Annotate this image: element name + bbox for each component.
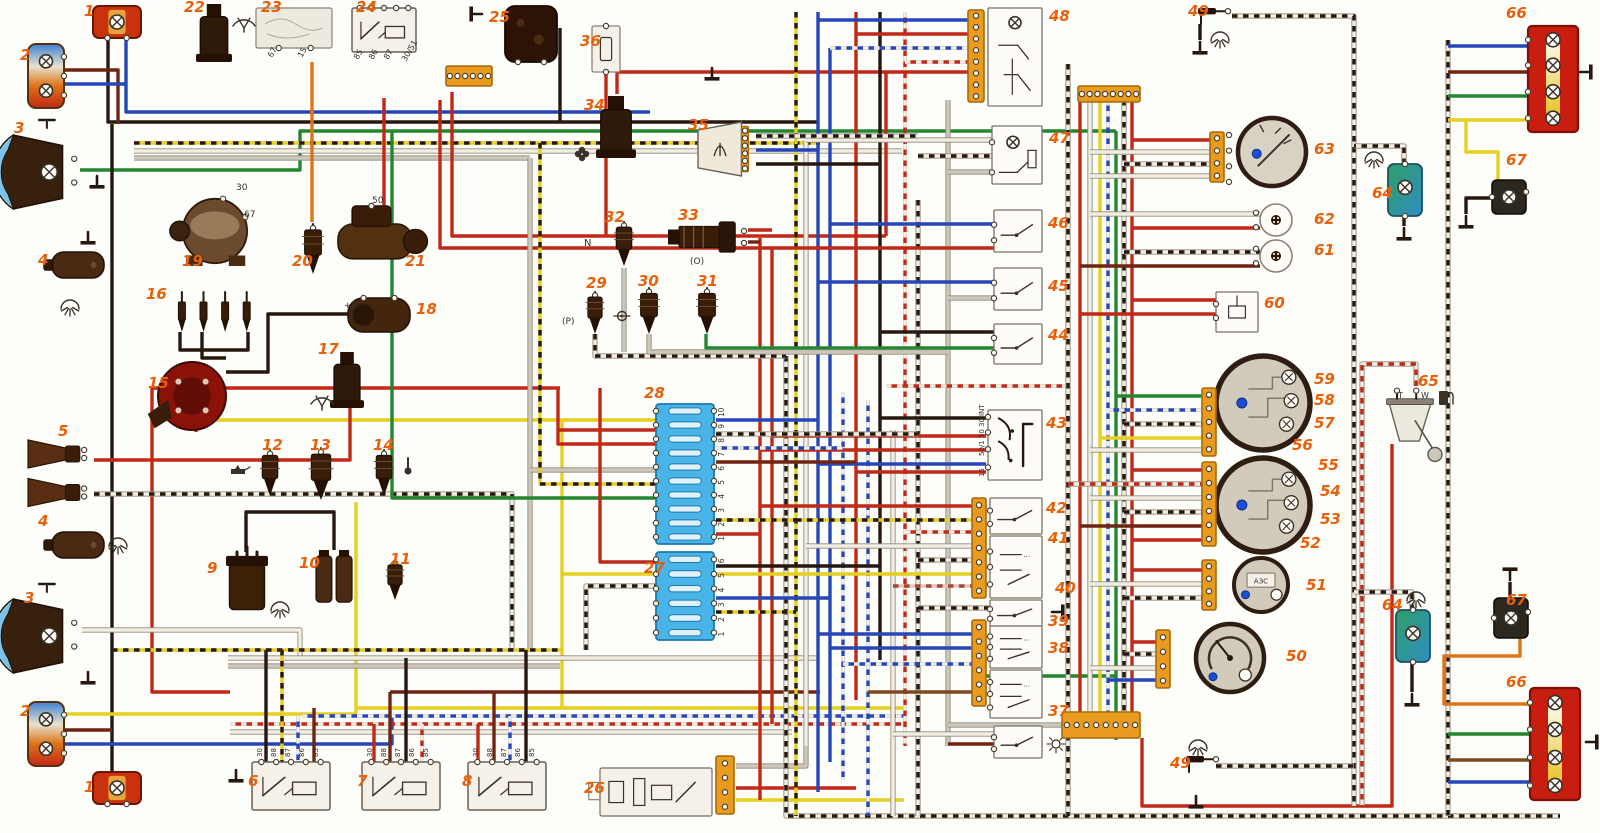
wire xyxy=(1466,198,1492,214)
relay-6 xyxy=(252,759,330,810)
rays-icon xyxy=(1211,32,1229,48)
svg-text:1: 1 xyxy=(717,536,726,541)
component-number-label: 3 xyxy=(14,119,24,137)
oil-pressure-sensor xyxy=(260,450,279,496)
component-number-label: 57 xyxy=(1314,414,1335,432)
terminal-label: 86 xyxy=(408,748,416,757)
turn-signal-breaker xyxy=(589,768,712,816)
component-number-label: 18 xyxy=(416,300,437,318)
switch-42 xyxy=(987,498,1042,534)
bulbr-icon xyxy=(1047,738,1065,753)
terminal-label: INT xyxy=(978,404,986,416)
ground-symbol xyxy=(705,68,720,81)
wire xyxy=(1444,638,1530,704)
switch-38: ... xyxy=(987,670,1042,718)
component-number-label: 24 xyxy=(356,0,377,16)
svg-text:9: 9 xyxy=(717,424,726,429)
svg-text:АЗС: АЗС xyxy=(1254,577,1268,585)
component-number-label: 19 xyxy=(182,252,203,270)
svg-text:10: 10 xyxy=(717,407,726,417)
svg-text:2: 2 xyxy=(717,617,726,622)
component-number-label: 21 xyxy=(405,252,426,270)
pump-icon xyxy=(1439,391,1453,405)
component-number-label: 37 xyxy=(1048,702,1069,720)
clock-gauge: АЗС xyxy=(1234,558,1288,612)
svg-text:...: ... xyxy=(1023,551,1030,559)
component-number-label: 4 xyxy=(37,251,48,269)
turn-repeater-front xyxy=(93,6,141,41)
component-number-label: 47 xyxy=(1048,129,1070,147)
wire xyxy=(586,586,656,650)
component-number-label: 27 xyxy=(644,559,665,577)
headlight-wiper-motor-2 xyxy=(44,532,104,558)
relay-8 xyxy=(468,759,546,810)
component-number-label: 63 xyxy=(1314,140,1335,158)
component-number-label: 54 xyxy=(1320,482,1341,500)
fuel-gauge xyxy=(1226,118,1306,186)
wire-stripe xyxy=(586,586,656,650)
wiring-diagram-canvas: 10987654321654321.........АЗС12345432167… xyxy=(0,0,1600,833)
component-number-label: 25 xyxy=(489,8,510,26)
terminal-label: 30 xyxy=(366,748,374,757)
component-number-label: 64 xyxy=(1372,184,1393,202)
sensor-30 xyxy=(639,288,660,334)
terminal-label: 15 xyxy=(978,468,986,477)
svg-text:4: 4 xyxy=(717,494,726,499)
terminal-label: +Б xyxy=(344,301,358,311)
component-number-label: 65 xyxy=(1418,372,1439,390)
component-number-label: 42 xyxy=(1045,499,1067,517)
front-combo-lamp-2 xyxy=(28,702,67,766)
component-number-label: 15 xyxy=(148,374,169,392)
wire xyxy=(64,502,356,714)
terminal-label: 87 xyxy=(500,748,508,757)
connector-strip xyxy=(446,66,492,86)
wire-outline xyxy=(94,494,512,650)
connector-strip xyxy=(1156,630,1170,688)
fuse-box-main: 10987654321 xyxy=(653,404,726,544)
component-number-label: 50 xyxy=(1286,647,1307,665)
ground-symbol xyxy=(1459,216,1474,229)
wire xyxy=(64,70,118,124)
terminal-label: 88 xyxy=(270,748,278,757)
component-number-label: 51 xyxy=(1306,576,1327,594)
terminal-label: 88 xyxy=(486,748,494,757)
connector-strip xyxy=(1202,462,1216,546)
temp-icon xyxy=(405,458,412,475)
component-number-label: 66 xyxy=(1506,673,1527,691)
component-number-label: 49 xyxy=(1187,2,1209,20)
terminal-label: 67 xyxy=(244,210,255,220)
component-number-label: 44 xyxy=(1047,326,1069,344)
component-number-label: 33 xyxy=(678,206,699,224)
terminal-label: 85 xyxy=(422,748,430,757)
component-number-label: 67 xyxy=(1506,591,1527,609)
terminal-label: 30 xyxy=(256,748,264,757)
rays-icon xyxy=(1365,152,1383,168)
component-number-label: 11 xyxy=(390,550,411,568)
component-number-label: 62 xyxy=(1314,210,1335,228)
component-number-label: 32 xyxy=(604,208,625,226)
component-number-label: 20 xyxy=(292,252,313,270)
tail-lamp-cluster xyxy=(1525,26,1578,132)
wire xyxy=(152,388,230,692)
svg-text:3: 3 xyxy=(717,508,726,513)
glovebox-lamp-switch xyxy=(991,726,1042,758)
switch-45 xyxy=(991,268,1042,310)
component-number-label: 16 xyxy=(146,285,167,303)
switch-39: ... xyxy=(987,626,1042,668)
terminal-label: 88 xyxy=(380,748,388,757)
component-number-label: 58 xyxy=(1314,391,1335,409)
ground-symbol xyxy=(1189,796,1204,809)
component-number-label: 6 xyxy=(248,772,258,790)
component-number-label: 64 xyxy=(1382,596,1403,614)
component-number-label: 36 xyxy=(580,32,601,50)
component-number-label: 41 xyxy=(1047,529,1069,547)
svg-text:...: ... xyxy=(1023,634,1030,642)
component-number-label: 61 xyxy=(1314,241,1335,259)
component-number-label: 55 xyxy=(1318,456,1339,474)
ground-symbol xyxy=(81,232,96,245)
component-number-label: 2 xyxy=(20,702,30,720)
component-number-label: 53 xyxy=(1320,510,1341,528)
rays-icon xyxy=(61,300,79,316)
component-number-label: 40 xyxy=(1054,579,1076,597)
component-number-label: 2 xyxy=(20,46,30,64)
connector-strip xyxy=(972,620,986,706)
wire xyxy=(617,72,886,94)
component-number-label: 38 xyxy=(1048,639,1069,657)
combination-gauge xyxy=(1216,458,1310,552)
component-number-label: 66 xyxy=(1506,4,1527,22)
terminal-label: 85 xyxy=(528,748,536,757)
component-number-label: 43 xyxy=(1045,414,1067,432)
component-number-label: 46 xyxy=(1047,214,1069,232)
ground-symbol xyxy=(1580,65,1593,80)
wire-stripe xyxy=(94,494,512,650)
turn-repeater-front-2 xyxy=(93,772,141,807)
hazard-switch xyxy=(988,8,1042,106)
component-number-label: 26 xyxy=(584,779,605,797)
component-number-label: 34 xyxy=(584,96,605,114)
component-number-label: 9 xyxy=(207,559,217,577)
ground-symbol xyxy=(1586,735,1599,750)
connector-strip xyxy=(968,10,984,102)
component-number-label: 10 xyxy=(299,554,320,572)
component-number-label: 28 xyxy=(644,384,665,402)
wire xyxy=(180,332,248,350)
front-combo-lamp xyxy=(28,44,67,108)
rays-icon xyxy=(1189,740,1207,756)
wiring-layer xyxy=(64,12,1560,816)
headlight-2 xyxy=(0,584,77,673)
washer-pump-2 xyxy=(330,352,364,408)
component-number-label: 30 xyxy=(638,272,659,290)
component-number-label: 1 xyxy=(84,778,94,796)
connector-strip xyxy=(716,756,734,814)
component-number-label: 23 xyxy=(261,0,282,16)
component-number-label: 17 xyxy=(318,340,339,358)
oil-icon xyxy=(231,465,250,474)
terminal-label: (P) xyxy=(562,317,574,327)
svg-text:3: 3 xyxy=(717,602,726,607)
svg-text:2: 2 xyxy=(717,522,726,527)
sensor-31 xyxy=(697,288,718,334)
connector-strip xyxy=(1202,388,1216,456)
heater-switch: ... xyxy=(987,536,1042,598)
relay-60 xyxy=(1213,292,1258,332)
svg-text:7: 7 xyxy=(717,452,726,457)
component-number-label: 1 xyxy=(84,2,94,20)
component-number-label: 67 xyxy=(1506,151,1527,169)
svg-text:6: 6 xyxy=(717,466,726,471)
component-number-label: 8 xyxy=(462,772,472,790)
switch-44 xyxy=(991,324,1042,364)
terminal-label: 86 xyxy=(298,748,306,757)
license-plate-lamp xyxy=(1489,180,1528,214)
component-number-label: 14 xyxy=(373,436,394,454)
svg-text:5: 5 xyxy=(717,573,726,578)
terminal-label: 50/1 50 30 xyxy=(978,418,986,456)
connector-strip xyxy=(1202,560,1216,610)
ground-symbol xyxy=(1503,567,1518,580)
terminal-label: Т xyxy=(1397,391,1403,400)
warning-lamp xyxy=(1253,204,1292,236)
ground-symbol xyxy=(229,770,244,783)
side-marker-lamp xyxy=(1388,161,1422,218)
wire xyxy=(1466,120,1498,180)
connector-strip xyxy=(972,498,986,598)
svg-text:...: ... xyxy=(1023,680,1030,688)
starter xyxy=(338,203,427,258)
relay-7 xyxy=(362,759,440,810)
component-number-label: 49 xyxy=(1169,754,1191,772)
terminal-label: N xyxy=(584,238,591,249)
wire xyxy=(202,332,226,358)
ground-symbol xyxy=(1405,694,1420,707)
svg-text:1: 1 xyxy=(717,632,726,637)
ground-symbol xyxy=(1397,228,1412,241)
ground-symbol xyxy=(90,176,105,189)
component-number-label: 5 xyxy=(58,422,68,440)
ground-symbol xyxy=(469,7,482,22)
svg-text:5: 5 xyxy=(717,480,726,485)
wire xyxy=(246,512,334,552)
side-marker-lamp-2 xyxy=(1396,607,1430,664)
rays-icon xyxy=(271,602,289,618)
terminal-label: 50 xyxy=(372,196,384,206)
component-number-label: 60 xyxy=(1264,294,1285,312)
component-number-label: 48 xyxy=(1048,7,1070,25)
tail-lamp-cluster-2 xyxy=(1527,688,1580,800)
fuel-level-sender xyxy=(1387,388,1442,461)
svg-text:6: 6 xyxy=(717,558,726,563)
component-number-label: 35 xyxy=(688,116,709,134)
wiper-icon xyxy=(233,18,255,32)
terminal-label: 85 xyxy=(312,748,320,757)
terminal-label: 30 xyxy=(236,183,248,193)
terminal-label: 87 xyxy=(284,748,292,757)
wire-outline xyxy=(586,586,656,650)
ignition-coil-2 xyxy=(226,547,268,610)
switch-46 xyxy=(991,210,1042,252)
svg-text:8: 8 xyxy=(717,438,726,443)
svg-text:4: 4 xyxy=(717,588,726,593)
terminal-label: (О) xyxy=(690,257,704,267)
component-number-label: 4 xyxy=(37,512,48,530)
component-number-label: 22 xyxy=(184,0,205,16)
wire xyxy=(558,388,656,444)
component-number-label: 12 xyxy=(262,436,283,454)
component-number-label: 3 xyxy=(24,589,34,607)
wiring-diagram: 10987654321654321.........АЗС12345432167… xyxy=(0,0,1600,833)
distributor xyxy=(148,362,226,430)
component-number-label: 7 xyxy=(357,772,368,790)
connector-strip xyxy=(1210,132,1224,182)
terminal-label: 87 xyxy=(394,748,402,757)
horns xyxy=(28,440,87,506)
handbrake-switch xyxy=(586,292,604,334)
component-number-label: 52 xyxy=(1300,534,1321,552)
terminal-label: 86 xyxy=(514,748,522,757)
motor-pair xyxy=(316,550,352,602)
wire xyxy=(706,334,994,348)
wire xyxy=(94,494,512,650)
component-number-label: 29 xyxy=(586,274,607,292)
tachometer xyxy=(1196,624,1264,692)
component-number-label: 31 xyxy=(697,272,718,290)
interference-suppressor xyxy=(505,6,557,65)
wiper-icon xyxy=(311,396,333,410)
terminal-label: 30 xyxy=(472,748,480,757)
ignition-switch xyxy=(985,410,1042,480)
ground-symbol xyxy=(81,672,96,685)
sensor-32 xyxy=(614,222,633,266)
headlight-wiper-motor xyxy=(44,252,104,278)
component-number-label: 59 xyxy=(1314,370,1335,388)
switch-40 xyxy=(987,600,1042,626)
headlight xyxy=(0,120,77,209)
temp-gauge-sensor xyxy=(668,222,747,252)
wire xyxy=(600,388,656,562)
component-number-label: 13 xyxy=(310,436,331,454)
connector-strip xyxy=(1062,712,1140,738)
ground-symbol xyxy=(1193,42,1208,55)
spark-plugs xyxy=(178,292,250,332)
component-number-label: 39 xyxy=(1048,612,1069,630)
component-number-label: 56 xyxy=(1292,436,1313,454)
terminal-label: W xyxy=(1421,391,1429,400)
door-switch-2 xyxy=(1186,756,1219,772)
component-number-label: 45 xyxy=(1047,277,1069,295)
lighting-switch xyxy=(989,126,1042,184)
connector-strip xyxy=(1078,86,1140,102)
